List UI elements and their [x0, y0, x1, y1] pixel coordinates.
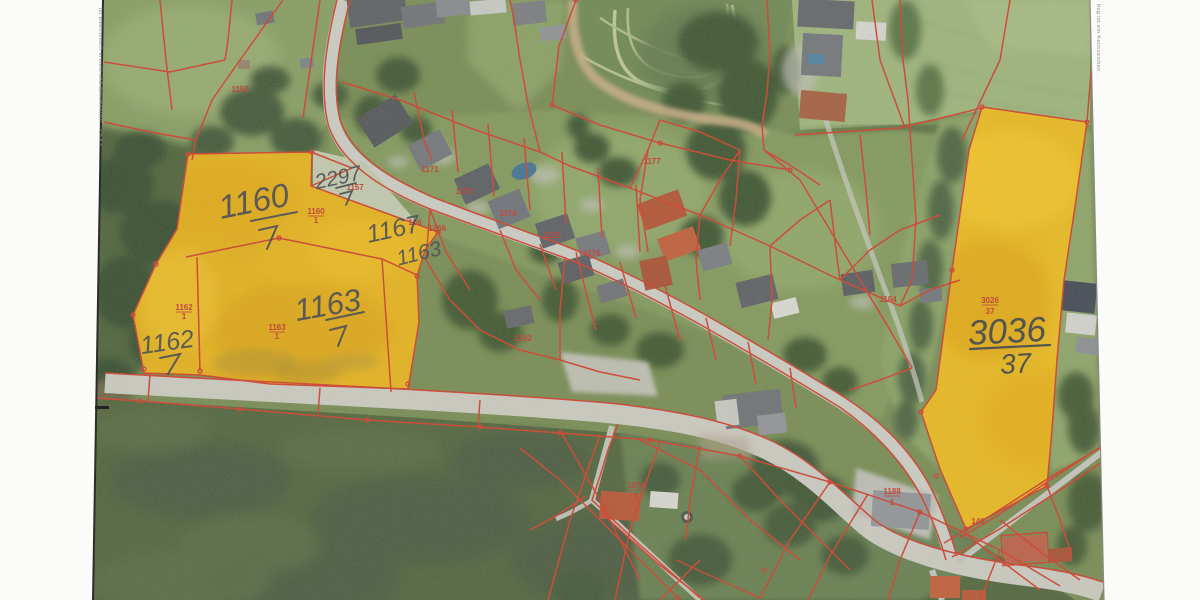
svg-text:ist elektronisch erstellt und: ist elektronisch erstellt und dokumentie…: [97, 8, 103, 158]
svg-text:bug ist ein Kennzeichen: bug ist ein Kennzeichen: [1095, 4, 1101, 72]
